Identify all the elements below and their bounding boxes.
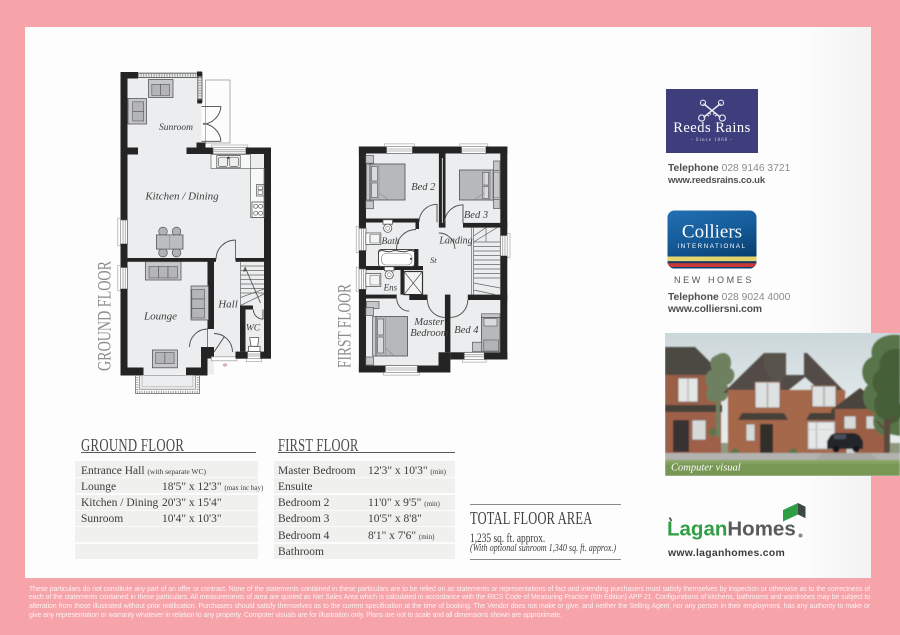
svg-text:Bed 4: Bed 4 xyxy=(454,325,479,336)
svg-text:LaganHomes: LaganHomes xyxy=(667,518,796,541)
svg-text:Kitchen / Dining: Kitchen / Dining xyxy=(144,191,219,203)
svg-text:FIRST FLOOR: FIRST FLOOR xyxy=(335,284,356,368)
svg-text:Bath: Bath xyxy=(382,237,400,247)
svg-text:Bed 3: Bed 3 xyxy=(464,210,488,221)
svg-text:GROUND FLOOR: GROUND FLOOR xyxy=(95,261,116,371)
svg-text:Landing: Landing xyxy=(438,236,472,247)
svg-text:Lounge: Lounge xyxy=(143,311,177,323)
svg-text:WC: WC xyxy=(246,324,261,334)
svg-text:Colliers: Colliers xyxy=(682,222,742,243)
svg-text:*: * xyxy=(222,361,228,373)
svg-text:Master: Master xyxy=(413,317,445,328)
svg-text:Bed 2: Bed 2 xyxy=(411,182,436,193)
svg-text:Sunroom: Sunroom xyxy=(159,123,193,133)
svg-text:St: St xyxy=(430,255,437,265)
svg-text:Computer visual: Computer visual xyxy=(671,463,741,474)
svg-text:Bedroom: Bedroom xyxy=(410,328,449,339)
svg-text:INTERNATIONAL: INTERNATIONAL xyxy=(677,243,746,250)
svg-text:Hall: Hall xyxy=(217,299,238,311)
svg-text:Ens: Ens xyxy=(383,283,398,293)
